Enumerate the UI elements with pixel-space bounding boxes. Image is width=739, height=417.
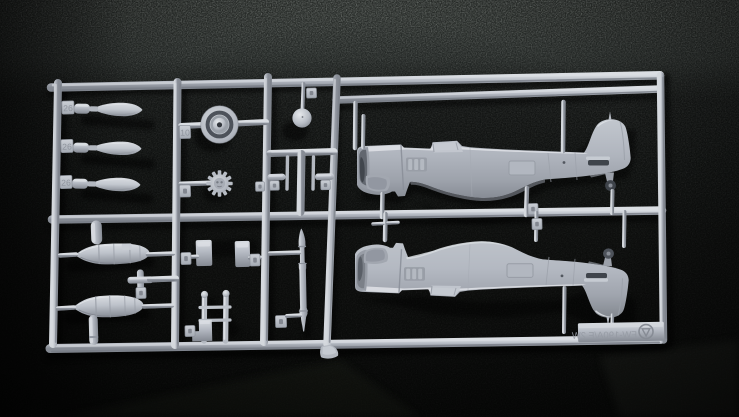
svg-text:26: 26	[63, 103, 73, 113]
svg-text:FW-190A/F 2W: FW-190A/F 2W	[572, 330, 637, 342]
svg-text:26: 26	[61, 178, 71, 188]
svg-text:10: 10	[180, 128, 190, 138]
svg-text:26: 26	[62, 142, 72, 152]
